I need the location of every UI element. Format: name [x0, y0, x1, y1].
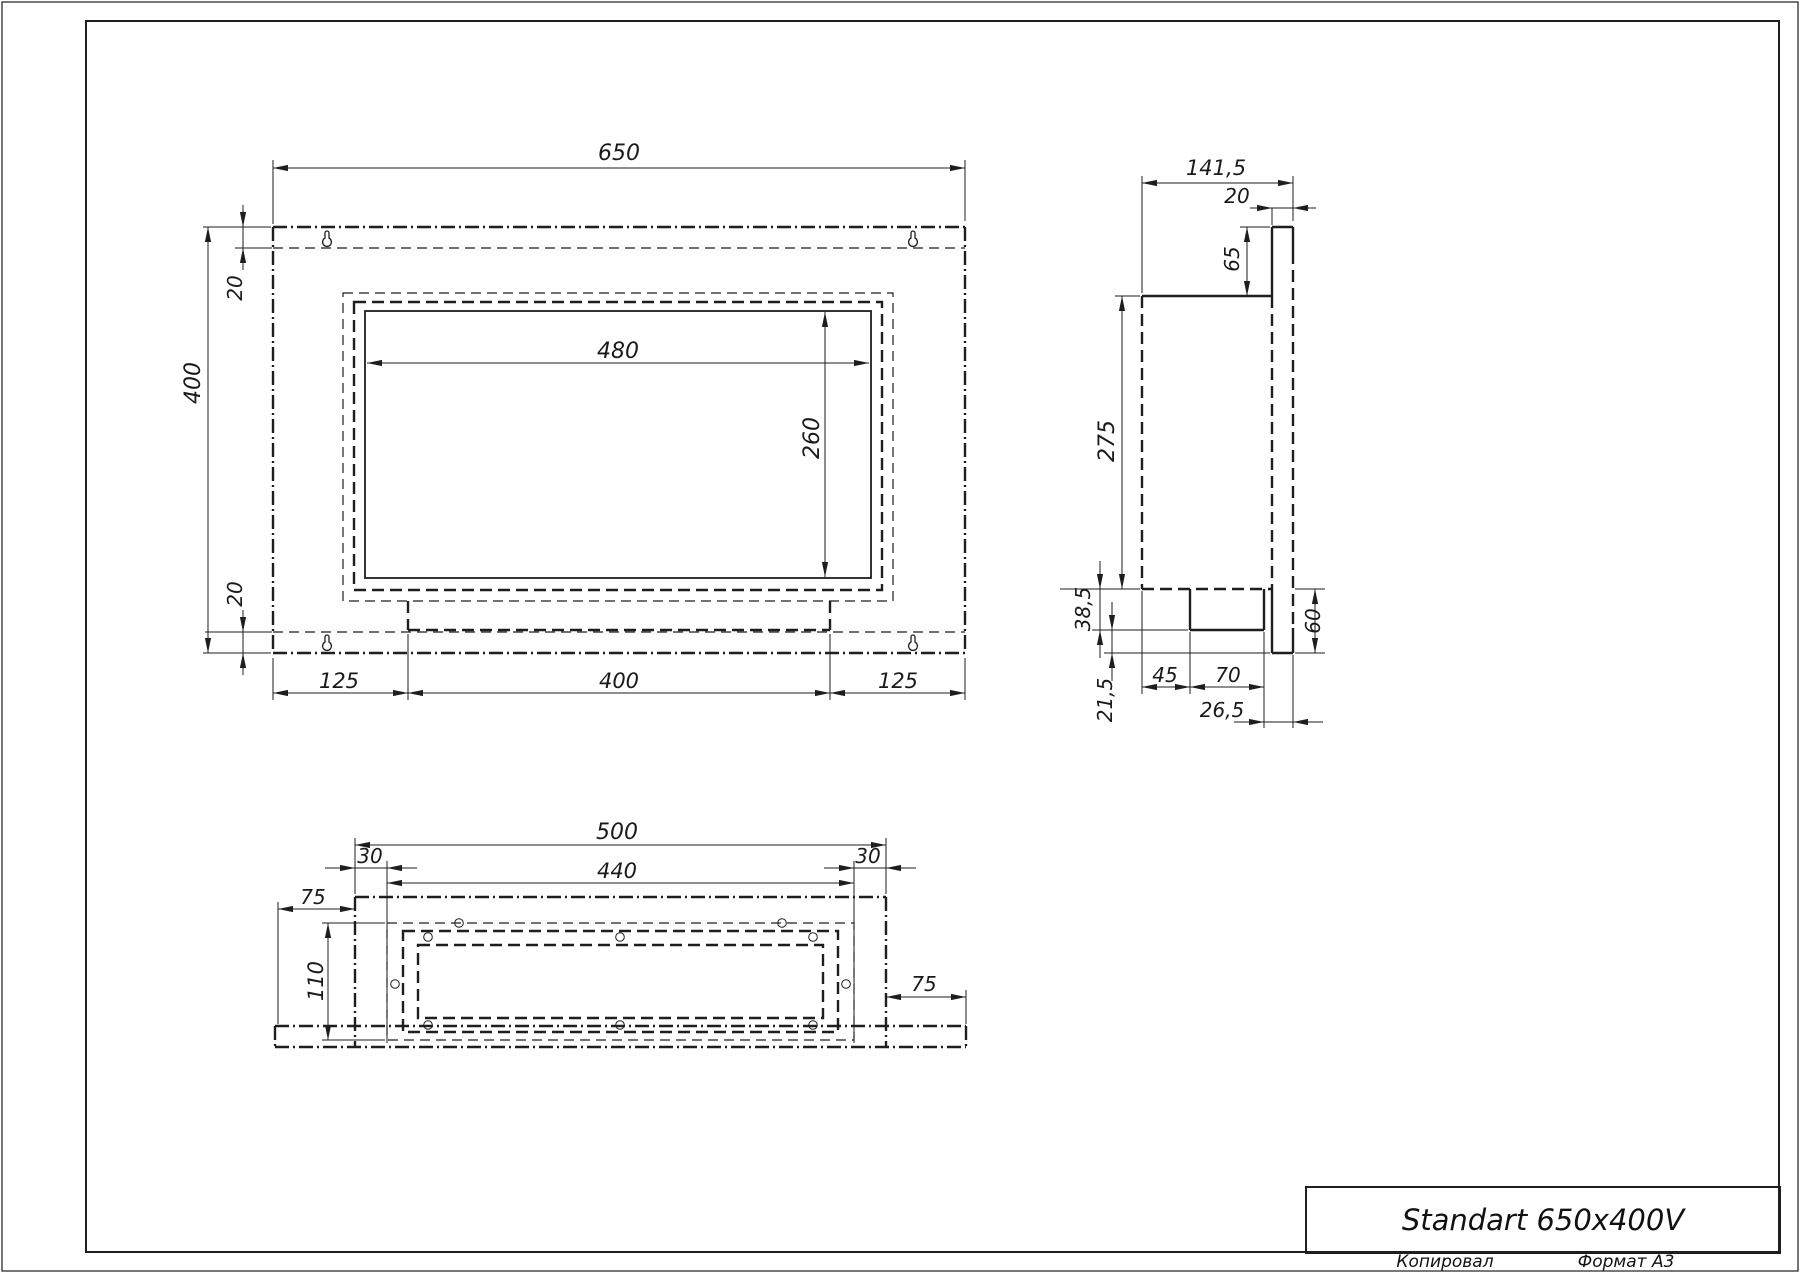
mounting-hole — [809, 933, 818, 942]
dimension-label: 30 — [855, 844, 880, 868]
keyhole-slot — [909, 231, 918, 246]
frame-view — [2, 2, 1798, 1271]
dimension-label: 45 — [1152, 663, 1177, 687]
format-label: Формат А3 — [1578, 1252, 1675, 1272]
dimension-label: 400 — [181, 362, 206, 404]
mounting-hole — [391, 980, 400, 989]
dimension-label: 480 — [597, 339, 639, 364]
mounting-hole — [616, 933, 625, 942]
dimension-label: 20 — [223, 275, 247, 300]
mounting-hole — [424, 933, 433, 942]
keyhole-slot — [323, 635, 332, 650]
front-view: 6504002048026020125400125 — [181, 141, 965, 700]
title-block: Standart 650x400V — [1305, 1186, 1781, 1254]
side-view: 141,5206527538,521,560457026,5 — [1060, 156, 1325, 728]
dimension-label: 38,5 — [1071, 587, 1095, 632]
dimension-label: 125 — [878, 669, 918, 693]
keyhole-slot — [323, 231, 332, 246]
bottom-view: 50030304407511075 — [275, 820, 966, 1047]
dimension-label: 400 — [599, 669, 639, 693]
dimension-label: 20 — [223, 581, 247, 606]
dimension-label: 125 — [319, 669, 359, 693]
dimension-label: 26,5 — [1200, 698, 1245, 722]
mounting-hole — [842, 980, 851, 989]
dimension-label: 110 — [304, 961, 328, 1001]
dimension-label: 75 — [911, 972, 936, 996]
dimension-label: 275 — [1095, 420, 1120, 462]
dimension-label: 20 — [1224, 184, 1249, 208]
dimension-label: 500 — [596, 820, 638, 845]
dimension-label: 30 — [357, 844, 382, 868]
dimension-label: 75 — [300, 885, 325, 909]
drawing-sheet: 6504002048026020125400125500303044075110… — [0, 0, 1800, 1273]
dimension-label: 70 — [1215, 663, 1240, 687]
dimension-label: 21,5 — [1093, 678, 1117, 723]
dimension-label: 65 — [1220, 246, 1244, 271]
keyhole-slot — [909, 635, 918, 650]
copied-label: Копировал — [1396, 1252, 1493, 1272]
dimension-label: 260 — [800, 417, 825, 459]
dimension-label: 650 — [598, 141, 640, 166]
drawing-title: Standart 650x400V — [1402, 1203, 1684, 1237]
dimension-label: 440 — [597, 859, 637, 883]
dimension-label: 60 — [1301, 608, 1325, 633]
dimension-label: 141,5 — [1186, 156, 1246, 180]
technical-drawing: 6504002048026020125400125500303044075110… — [0, 0, 1800, 1273]
